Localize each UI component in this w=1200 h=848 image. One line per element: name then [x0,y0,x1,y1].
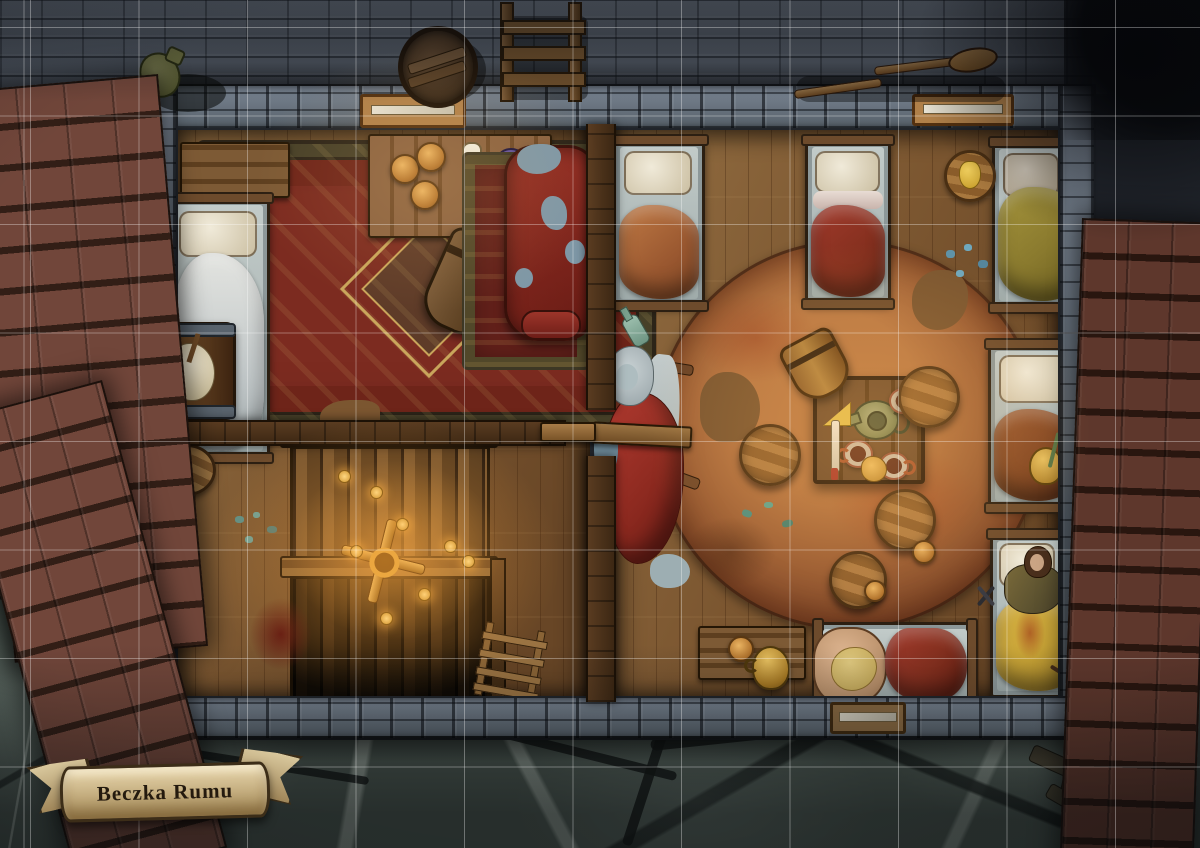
couch-armrest [521,310,581,340]
bench [180,142,290,198]
bed-red [805,140,891,304]
bed-headboard [164,192,274,204]
oar-blade [946,44,999,76]
window-glass [839,712,897,722]
gold-coin [444,540,457,553]
herb-bit [235,516,244,523]
bed-pillow [179,211,257,257]
herb-bit [764,502,773,508]
glass-bit [964,244,972,251]
bed-orange [613,140,705,306]
teapot-lid [867,411,887,431]
jug [752,646,790,690]
bed-pillow [815,151,880,193]
bed-footboard [801,298,895,310]
knife-handle [831,468,838,480]
elder-red-blanket [604,392,684,564]
dark-corner [1064,0,1200,140]
ladder-rung [502,46,586,61]
ladder-rung [502,20,586,35]
blanket-stain [1015,607,1045,659]
jug-handle [744,658,759,673]
herb-scatter [742,500,802,540]
couch-worn-patch [541,196,567,230]
tankard [912,540,936,564]
pastry [861,456,887,482]
couch-worn-patch [565,240,585,264]
tankard [416,142,446,172]
gold-coin [380,612,393,625]
herb-bit [245,536,253,543]
bedroom-stairhall-wall [172,420,566,446]
gold-coin [418,588,431,601]
barrel-lid [398,26,478,108]
bed-horizontal [816,622,974,706]
blanket-orange [619,205,699,299]
ladder [498,2,590,100]
resting-woman-token[interactable] [1000,544,1066,614]
herb-bit [781,519,793,529]
map-title-text: Beczka Rumu [96,778,233,807]
glass-bit [978,260,988,268]
fallen-scissors [974,584,998,608]
elder-face [616,364,638,390]
barrel [390,24,480,104]
tankard [410,180,440,210]
glass-scatter [946,244,996,286]
blanket-red [811,205,885,297]
glass-bit [956,270,964,277]
blanket-red-horizontal [885,628,967,700]
gold-coin [462,555,475,568]
yellow-bell [959,161,981,189]
gold-coin [338,470,351,483]
tankard-band [787,341,836,371]
map-title-banner: Beczka Rumu [34,748,296,834]
bed-headboard [609,134,709,146]
inner-door-leaf[interactable] [540,422,596,442]
bed-headboard [801,134,895,146]
divider-wall-lower [586,456,616,702]
gold-coin [350,545,363,558]
bed-pillow [624,151,692,195]
herb-scatter [233,512,285,554]
wall-bottom [140,696,1096,740]
map-title: Beczka Rumu [59,761,270,822]
straw-sack [813,627,887,705]
glass-bit [946,250,955,258]
straw-spill [831,647,877,691]
woman-face [1030,554,1044,571]
oars [790,46,1020,106]
stool [898,366,960,428]
herb-bit [267,526,277,533]
tankard [864,580,886,602]
couch-worn-patch [515,268,533,288]
window [830,702,906,734]
red-couch [504,145,598,341]
roof-right [1060,218,1200,848]
divider-wall-upper [586,124,616,410]
bed-pillow [999,355,1067,403]
gold-coin [396,518,409,531]
gold-coin [370,486,383,499]
stool [739,424,801,486]
couch-worn-patch [517,144,561,174]
candelabra-hub [366,544,402,580]
blood-stain [250,598,312,670]
ladder-rung [502,72,586,87]
battlemap-stage[interactable]: Beczka Rumu [0,0,1200,848]
herb-bit [741,509,753,519]
elder-foot-wrap [650,554,690,588]
mug-handle [901,460,916,475]
round-tray [944,150,996,202]
knife [831,420,840,472]
small-ladder [472,621,548,703]
herb-bit [253,512,260,518]
